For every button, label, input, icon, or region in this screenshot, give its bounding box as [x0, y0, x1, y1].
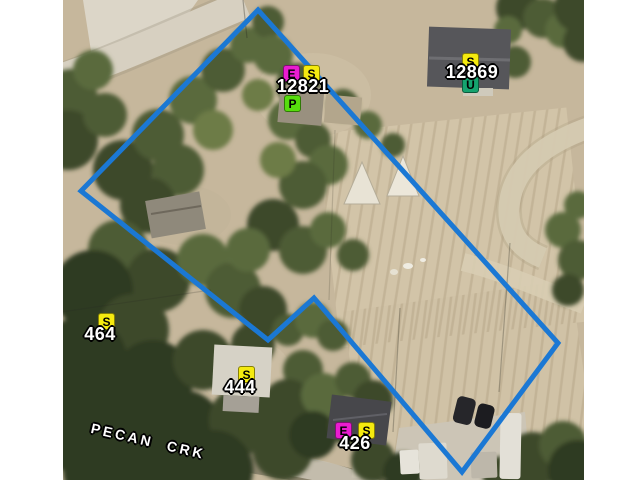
- aerial-map[interactable]: E S P 12821 S U 12869 S 464 S 444 E S 42…: [63, 0, 584, 480]
- aerial-imagery: [63, 0, 584, 480]
- map-viewport: E S P 12821 S U 12869 S 464 S 444 E S 42…: [0, 0, 640, 480]
- address-label-464: 464: [84, 324, 116, 345]
- address-label-444: 444: [224, 377, 256, 398]
- address-label-12821: 12821: [277, 76, 330, 97]
- code-badge-p[interactable]: P: [284, 95, 301, 112]
- address-label-426: 426: [339, 433, 371, 454]
- address-label-12869: 12869: [446, 62, 499, 83]
